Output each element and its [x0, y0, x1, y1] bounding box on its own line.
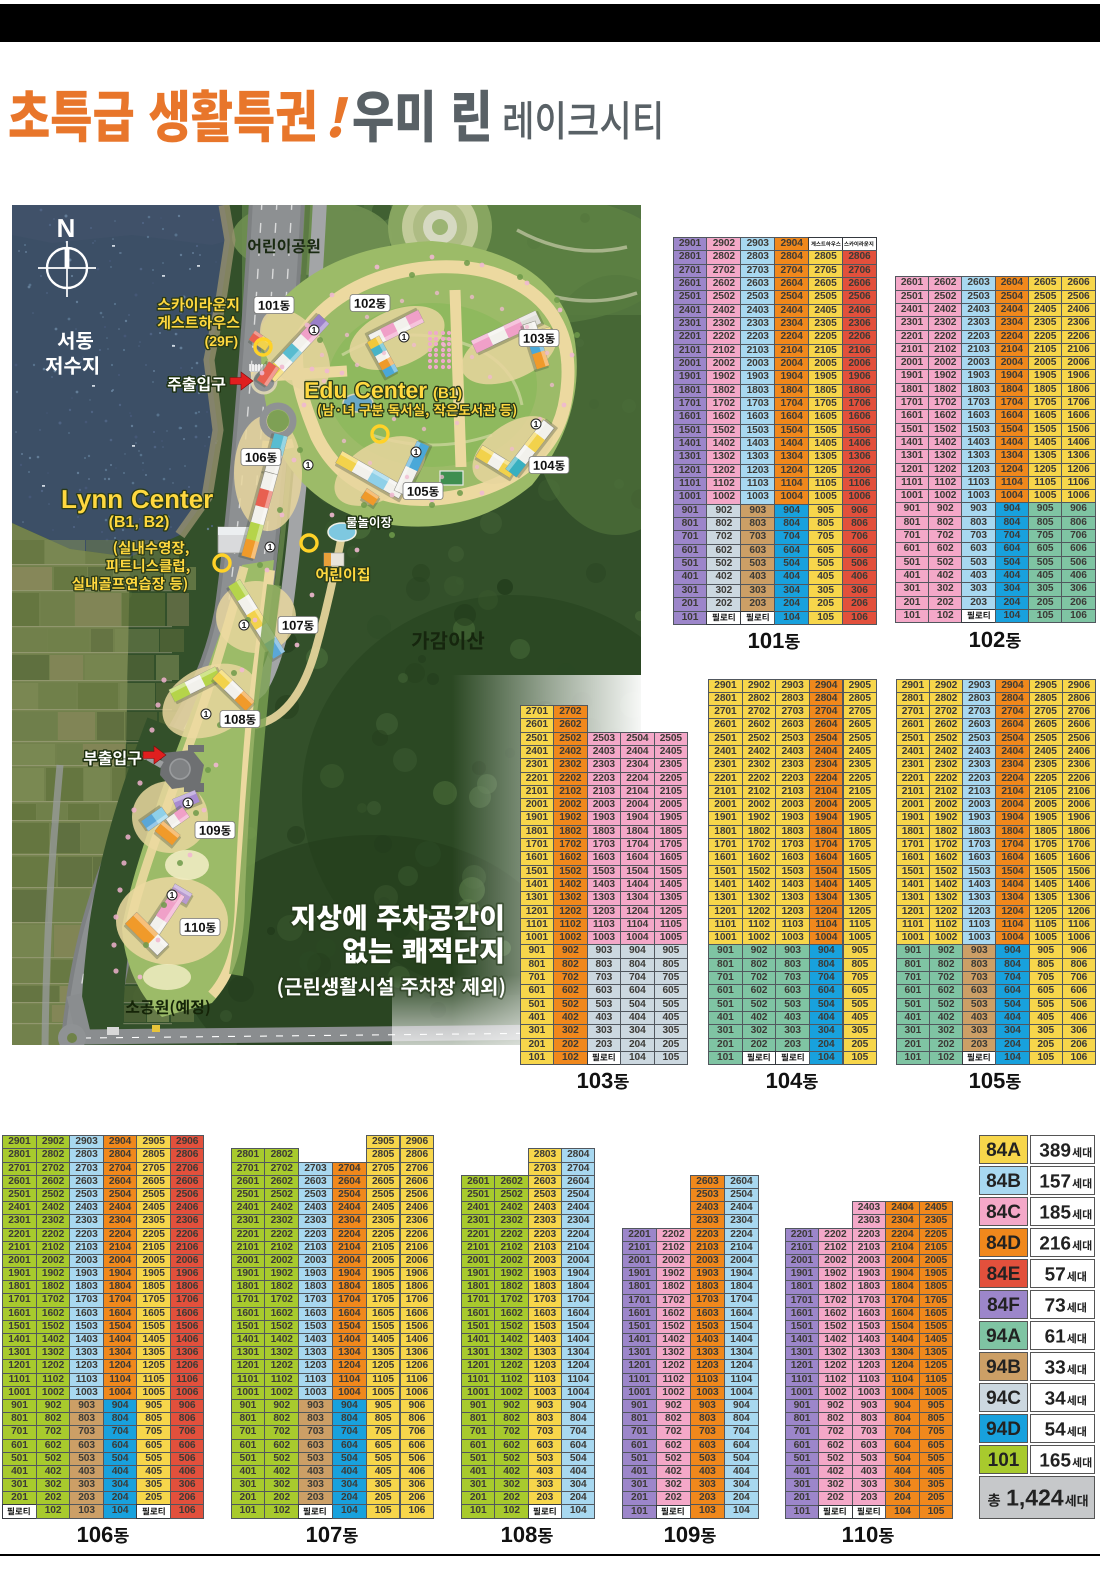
svg-text:1: 1: [414, 447, 419, 457]
svg-text:1: 1: [242, 620, 247, 630]
svg-text:1: 1: [306, 460, 311, 470]
svg-text:1: 1: [186, 798, 191, 808]
svg-text:1: 1: [312, 325, 317, 335]
svg-text:1: 1: [170, 890, 175, 900]
svg-text:1: 1: [402, 332, 407, 342]
svg-text:1: 1: [268, 542, 273, 552]
svg-text:1: 1: [204, 709, 209, 719]
svg-text:1: 1: [534, 419, 539, 429]
